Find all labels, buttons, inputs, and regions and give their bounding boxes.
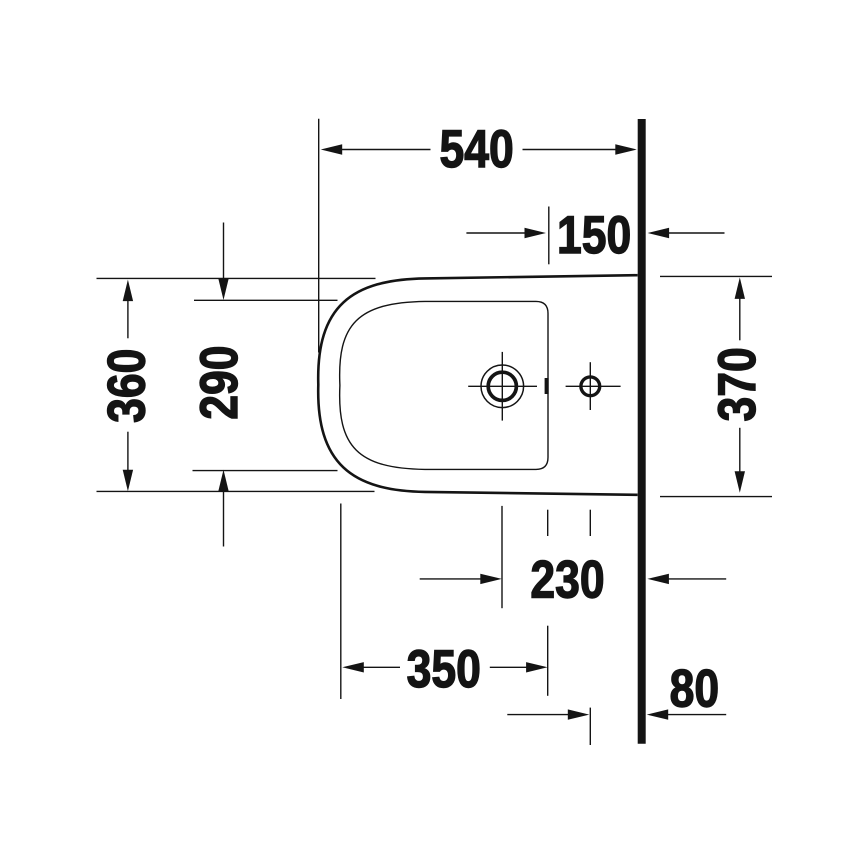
- svg-text:230: 230: [530, 551, 604, 609]
- svg-text:350: 350: [407, 641, 481, 699]
- svg-text:540: 540: [439, 121, 513, 179]
- svg-text:290: 290: [191, 345, 249, 419]
- svg-text:370: 370: [709, 347, 767, 421]
- svg-text:150: 150: [557, 207, 631, 265]
- svg-text:360: 360: [98, 349, 156, 423]
- svg-text:80: 80: [670, 660, 720, 718]
